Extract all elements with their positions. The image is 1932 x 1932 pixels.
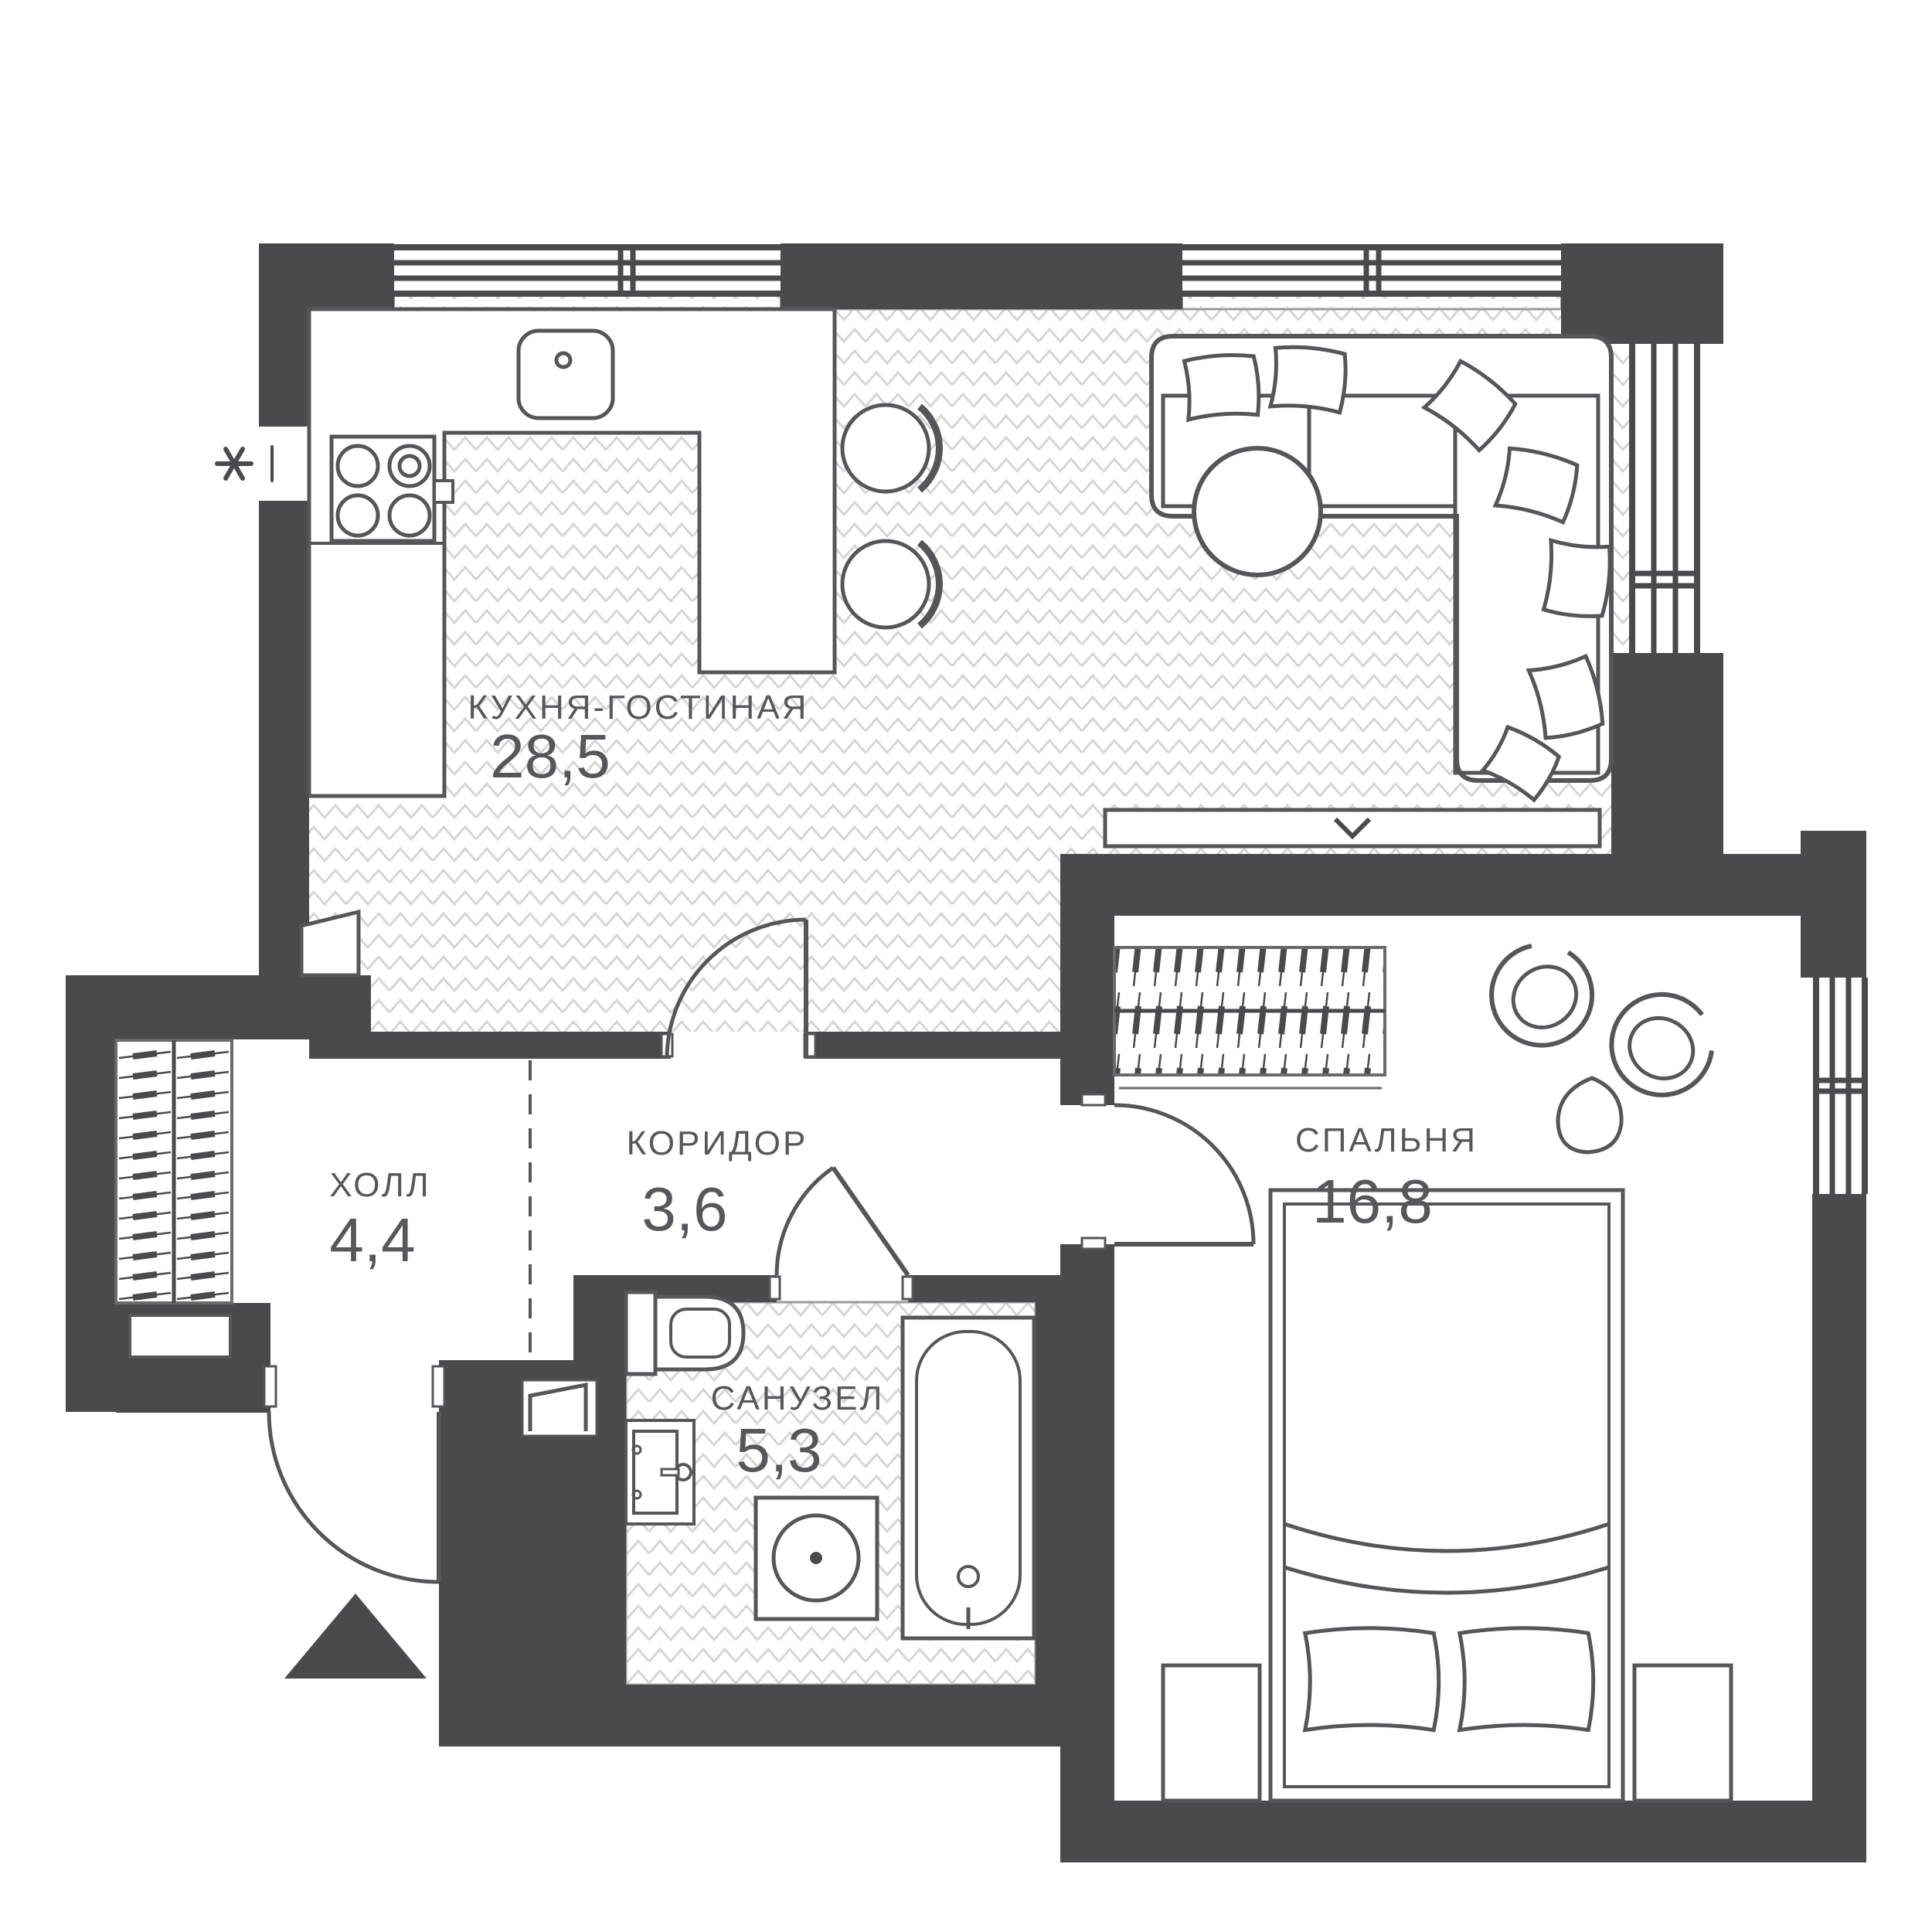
door-bedroom bbox=[1082, 1094, 1253, 1249]
bathtub-icon bbox=[903, 1318, 1034, 1638]
nightstand bbox=[1163, 1665, 1260, 1801]
wall-living-right-pillar bbox=[1611, 653, 1723, 916]
kitchen-sink-icon bbox=[519, 331, 613, 418]
armchair-icon bbox=[1472, 925, 1612, 1065]
bed-icon bbox=[1270, 1190, 1623, 1801]
stove-icon bbox=[332, 437, 453, 541]
bed-pillow bbox=[1460, 1628, 1594, 1730]
wall-corridor-bottom-right bbox=[908, 1275, 1060, 1302]
floor-plan: КУХНЯ-ГОСТИНАЯ 28,5 КОРИДОР 3,6 ХОЛЛ 4,4… bbox=[0, 0, 1932, 1932]
side-table-icon bbox=[1558, 1078, 1621, 1152]
window-living-right bbox=[1629, 344, 1700, 653]
window-top-1 bbox=[394, 244, 781, 297]
wall-entrance-left bbox=[66, 1360, 270, 1412]
wall-kitchen-bottom-left bbox=[309, 1032, 671, 1059]
toilet-icon bbox=[626, 1292, 743, 1374]
entrance-arrow-icon bbox=[284, 1594, 427, 1679]
floor-plan-canvas: КУХНЯ-ГОСТИНАЯ 28,5 КОРИДОР 3,6 ХОЛЛ 4,4… bbox=[0, 0, 1932, 1932]
room-area-bedroom: 16,8 bbox=[1312, 1167, 1433, 1236]
window-top-2 bbox=[1182, 244, 1561, 297]
window-bedroom-right bbox=[1813, 978, 1868, 1194]
coffee-table-icon bbox=[1194, 448, 1321, 575]
nightstand bbox=[1634, 1665, 1731, 1801]
wall-kitchen-bottom-right bbox=[806, 1032, 1060, 1059]
mirror-panel-icon bbox=[522, 1380, 597, 1436]
room-label-kitchen-living: КУХНЯ-ГОСТИНАЯ bbox=[468, 689, 809, 726]
door-entrance bbox=[264, 1366, 444, 1582]
wall-top-right-corner bbox=[1561, 243, 1723, 344]
room-label-bathroom: САНУЗЕЛ bbox=[711, 1379, 885, 1417]
wall-bedroom-left-lower bbox=[1060, 1244, 1114, 1862]
wall-left bbox=[259, 243, 309, 1039]
wall-hall-outer-left bbox=[66, 975, 116, 1412]
window-bay-floor bbox=[1611, 344, 1632, 653]
room-area-bathroom: 5,3 bbox=[736, 1416, 821, 1485]
wall-bathroom-left bbox=[573, 1302, 626, 1685]
hall-wardrobe-icon bbox=[116, 1040, 232, 1303]
wall-bathroom-bottom bbox=[573, 1685, 1114, 1747]
bedroom-furniture bbox=[1114, 925, 1731, 1801]
wall-bedroom-right-lower bbox=[1812, 1194, 1866, 1862]
washing-machine-icon bbox=[756, 1498, 877, 1619]
room-area-kitchen-living: 28,5 bbox=[490, 722, 611, 791]
wall-bedroom-bottom bbox=[1060, 1801, 1866, 1862]
washbasin-icon bbox=[626, 1420, 694, 1524]
wall-bedroom-right-upper bbox=[1801, 831, 1866, 978]
room-label-bedroom: СПАЛЬНЯ bbox=[1295, 1121, 1478, 1159]
hall-niche bbox=[130, 1315, 230, 1357]
bedroom-wardrobe-icon bbox=[1114, 947, 1385, 1088]
wall-bathroom-right bbox=[1036, 1302, 1060, 1685]
tv-console bbox=[1105, 810, 1600, 846]
room-area-hall: 4,4 bbox=[329, 1206, 415, 1274]
wall-top-middle-pillar bbox=[781, 243, 1182, 309]
wall-bedroom-top bbox=[1060, 854, 1866, 916]
room-area-corridor: 3,6 bbox=[641, 1175, 727, 1243]
room-label-corridor: КОРИДОР bbox=[627, 1124, 808, 1162]
bed-pillow bbox=[1305, 1628, 1439, 1730]
room-label-hall: ХОЛЛ bbox=[329, 1166, 430, 1204]
kitchen-living-floor-lower bbox=[309, 854, 1060, 1032]
door-bathroom bbox=[770, 1168, 913, 1299]
